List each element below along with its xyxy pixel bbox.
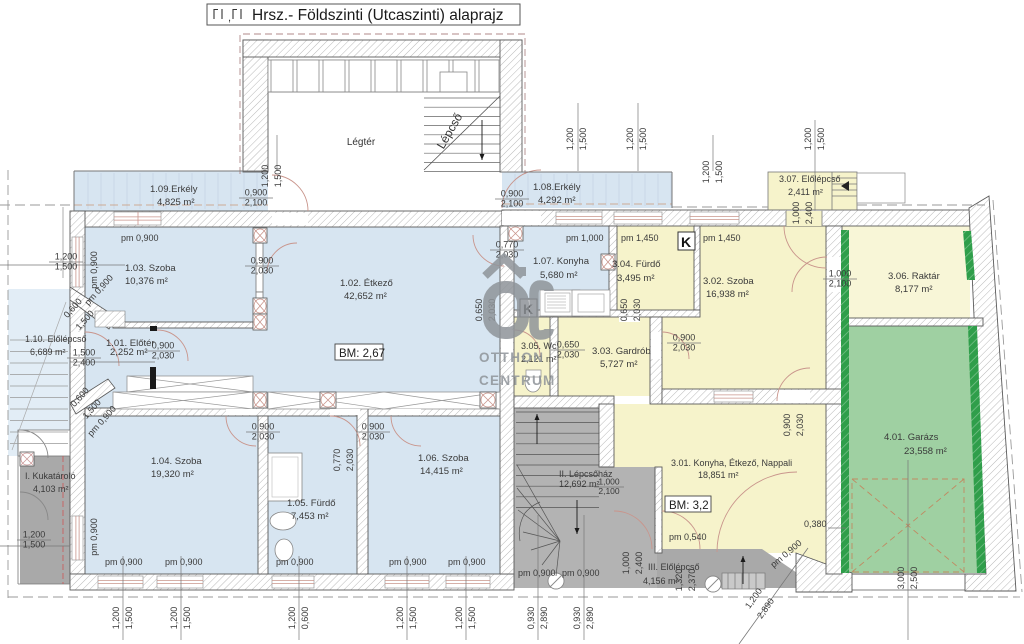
svg-text:0,650: 0,650	[557, 340, 580, 350]
svg-text:1.05. Fürdő: 1.05. Fürdő	[287, 498, 336, 509]
svg-text:1.04. Szoba: 1.04. Szoba	[151, 456, 202, 467]
svg-text:0,900: 0,900	[251, 256, 274, 266]
svg-text:1,500: 1,500	[23, 540, 46, 550]
svg-text:1,200: 1,200	[803, 128, 813, 151]
svg-text:1.09.Erkély: 1.09.Erkély	[150, 184, 198, 195]
svg-text:1.06. Szoba: 1.06. Szoba	[418, 453, 469, 464]
svg-text:1,500: 1,500	[467, 607, 477, 630]
svg-text:4,825 m²: 4,825 m²	[157, 197, 195, 208]
svg-text:0,900: 0,900	[252, 422, 275, 432]
svg-text:2,252 m²: 2,252 m²	[110, 347, 148, 358]
svg-text:3.03. Gardrób: 3.03. Gardrób	[592, 346, 651, 357]
svg-text:4,292 m²: 4,292 m²	[538, 195, 576, 206]
svg-text:3.07. Előlépcső: 3.07. Előlépcső	[779, 174, 841, 184]
svg-text:pm 1,450: pm 1,450	[703, 233, 741, 243]
svg-text:BM: 3,2: BM: 3,2	[669, 500, 709, 512]
svg-text:2,100: 2,100	[501, 199, 524, 209]
svg-text:pm 1,450: pm 1,450	[621, 233, 659, 243]
svg-text:Hrsz.- Földszinti (Utcaszinti): Hrsz.- Földszinti (Utcaszinti) alaprajz	[252, 7, 504, 24]
svg-text:2,030: 2,030	[252, 432, 275, 442]
svg-text:2,100: 2,100	[245, 198, 268, 208]
svg-text:2,030: 2,030	[673, 343, 696, 353]
svg-text:2,030: 2,030	[251, 266, 274, 276]
svg-text:42,652 m²: 42,652 m²	[344, 291, 387, 302]
svg-text:1,200: 1,200	[287, 607, 297, 630]
svg-text:2,030: 2,030	[152, 351, 175, 361]
svg-text:1,500: 1,500	[55, 262, 78, 272]
svg-text:1,000: 1,000	[829, 269, 852, 279]
svg-text:1,500: 1,500	[816, 128, 826, 151]
svg-text:2,030: 2,030	[795, 414, 805, 437]
svg-text:2,400: 2,400	[804, 202, 814, 225]
svg-text:0,900: 0,900	[362, 422, 385, 432]
svg-text:pm 0,900: pm 0,900	[165, 557, 203, 567]
svg-text:0,900: 0,900	[673, 333, 696, 343]
svg-text:2,411 m²: 2,411 m²	[788, 187, 823, 197]
svg-text:12,692 m²: 12,692 m²	[559, 479, 600, 489]
svg-text:2,030: 2,030	[632, 299, 642, 322]
svg-text:pm 0,900: pm 0,900	[448, 557, 486, 567]
svg-text:0,900: 0,900	[152, 341, 175, 351]
svg-text:18,851 m²: 18,851 m²	[698, 470, 739, 480]
svg-text:2,400: 2,400	[634, 552, 644, 575]
svg-text:1,200: 1,200	[701, 161, 711, 184]
svg-text:1,200: 1,200	[454, 607, 464, 630]
svg-text:1,200: 1,200	[395, 607, 405, 630]
svg-text:3.04. Fürdő: 3.04. Fürdő	[612, 259, 661, 270]
svg-text:3.01. Konyha, Étkező, Nappali: 3.01. Konyha, Étkező, Nappali	[671, 458, 792, 468]
svg-text:1,500: 1,500	[124, 607, 134, 630]
svg-text:23,558 m²: 23,558 m²	[904, 446, 947, 457]
svg-text:6,689 m²: 6,689 m²	[30, 347, 66, 357]
svg-text:19,320 m²: 19,320 m²	[151, 469, 194, 480]
svg-text:1.03. Szoba: 1.03. Szoba	[125, 263, 176, 274]
svg-text:0,770: 0,770	[496, 240, 519, 250]
svg-text:2,030: 2,030	[345, 449, 355, 472]
svg-text:pm 0,540: pm 0,540	[669, 532, 707, 542]
svg-text:2,100: 2,100	[829, 279, 852, 289]
svg-text:0,930: 0,930	[572, 607, 582, 630]
svg-text:1,200: 1,200	[55, 252, 78, 262]
svg-text:,: ,	[228, 12, 231, 24]
svg-text:pm 0,900: pm 0,900	[105, 557, 143, 567]
svg-text:0,900: 0,900	[782, 414, 792, 437]
svg-text:1,500: 1,500	[182, 607, 192, 630]
svg-text:0,600: 0,600	[300, 607, 310, 630]
svg-text:Légtér: Légtér	[347, 137, 376, 148]
svg-text:0,930: 0,930	[526, 607, 536, 630]
svg-text:1,500: 1,500	[408, 607, 418, 630]
svg-text:1,200: 1,200	[111, 607, 121, 630]
svg-text:K: K	[681, 234, 691, 250]
svg-text:1,200: 1,200	[23, 530, 46, 540]
svg-text:1,000: 1,000	[621, 552, 631, 575]
svg-text:pm 0,900: pm 0,900	[389, 557, 427, 567]
svg-text:CENTRUM: CENTRUM	[479, 373, 556, 388]
svg-text:1.07. Konyha: 1.07. Konyha	[533, 256, 590, 267]
svg-text:pm 0,900: pm 0,900	[562, 568, 600, 578]
svg-text:1,200: 1,200	[169, 607, 179, 630]
svg-text:1,500: 1,500	[273, 165, 283, 188]
svg-text:3,495 m²: 3,495 m²	[617, 273, 655, 284]
svg-text:1,500: 1,500	[578, 128, 588, 151]
svg-text:1,500: 1,500	[714, 161, 724, 184]
svg-text:pm 0,900: pm 0,900	[518, 568, 556, 578]
svg-text:8,177 m²: 8,177 m²	[895, 284, 933, 295]
svg-text:1.10. Előlépcső: 1.10. Előlépcső	[25, 334, 87, 344]
svg-text:0,770: 0,770	[332, 449, 342, 472]
svg-text:2,890: 2,890	[585, 607, 595, 630]
svg-text:1,200: 1,200	[625, 128, 635, 151]
svg-text:4,103 m²: 4,103 m²	[33, 484, 69, 494]
svg-text:0,380: 0,380	[804, 519, 827, 529]
svg-text:16,938 m²: 16,938 m²	[706, 289, 749, 300]
svg-text:2,890: 2,890	[539, 607, 549, 630]
svg-text:1,500: 1,500	[73, 348, 96, 358]
svg-text:0,900: 0,900	[501, 189, 524, 199]
svg-text:1,500: 1,500	[638, 128, 648, 151]
svg-text:2,400: 2,400	[73, 358, 96, 368]
svg-text:1,000: 1,000	[598, 477, 620, 487]
svg-text:3.02. Szoba: 3.02. Szoba	[703, 276, 754, 287]
svg-text:pm 1,000: pm 1,000	[566, 233, 604, 243]
svg-text:pm 0,900: pm 0,900	[89, 518, 99, 556]
svg-text:3,000: 3,000	[896, 567, 906, 590]
svg-text:4.01. Garázs: 4.01. Garázs	[884, 432, 939, 443]
svg-text:pm 0,900: pm 0,900	[121, 233, 159, 243]
svg-text:5,727 m²: 5,727 m²	[600, 359, 638, 370]
svg-text:1,200: 1,200	[260, 165, 270, 188]
svg-text:1.08.Erkély: 1.08.Erkély	[533, 182, 581, 193]
svg-text:2,030: 2,030	[362, 432, 385, 442]
svg-text:pm 0,900: pm 0,900	[276, 557, 314, 567]
svg-text:14,415 m²: 14,415 m²	[420, 466, 463, 477]
svg-text:7,453 m²: 7,453 m²	[291, 511, 329, 522]
svg-text:0,650: 0,650	[474, 299, 484, 322]
svg-text:2,500: 2,500	[909, 567, 919, 590]
svg-text:0,650: 0,650	[619, 299, 629, 322]
svg-text:2,030: 2,030	[557, 350, 580, 360]
svg-text:10,376 m²: 10,376 m²	[125, 276, 168, 287]
svg-text:I. Kukatároló: I. Kukatároló	[25, 471, 76, 481]
svg-text:1,000: 1,000	[791, 202, 801, 225]
svg-text:0,900: 0,900	[245, 188, 268, 198]
svg-text:OTTHON: OTTHON	[479, 350, 544, 365]
svg-text:5,680 m²: 5,680 m²	[540, 270, 578, 281]
svg-text:1.02. Étkező: 1.02. Étkező	[340, 278, 393, 289]
svg-text:2,370: 2,370	[687, 569, 697, 592]
svg-text:3.06. Raktár: 3.06. Raktár	[888, 271, 940, 282]
svg-text:2,100: 2,100	[598, 486, 620, 496]
svg-text:1,200: 1,200	[565, 128, 575, 151]
svg-text:1,320: 1,320	[674, 569, 684, 592]
svg-text:BM: 2,67: BM: 2,67	[339, 348, 385, 360]
